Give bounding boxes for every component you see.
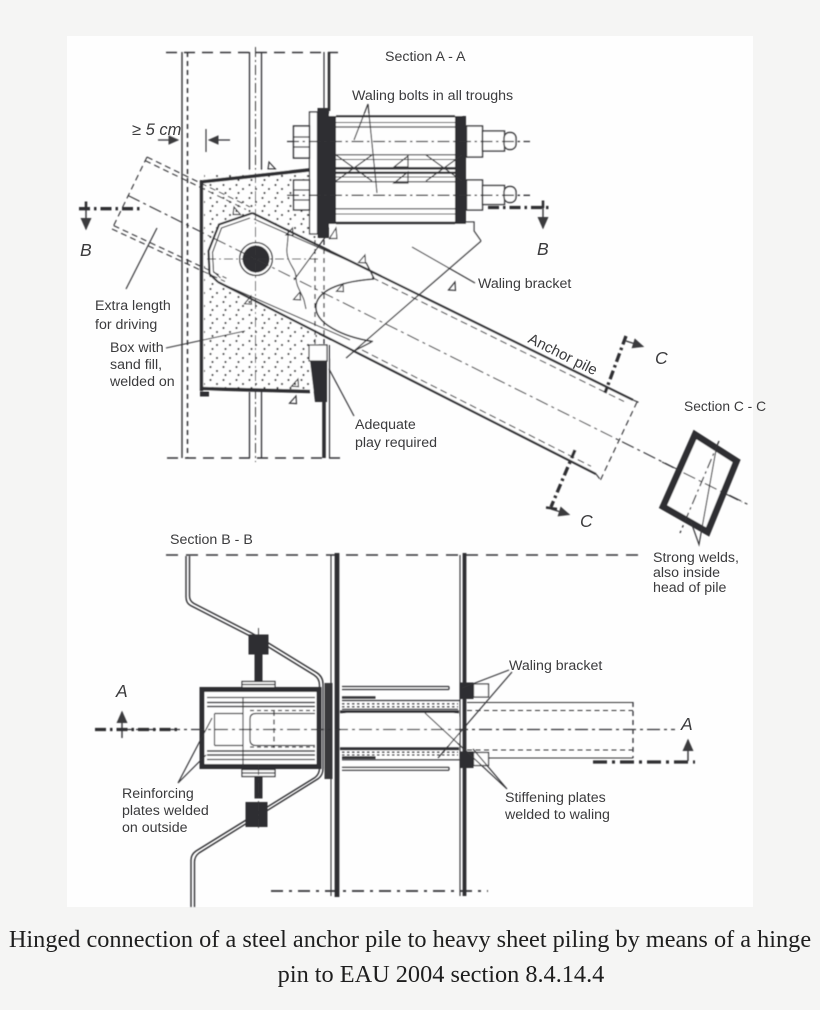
svg-text:plates welded: plates welded [122, 803, 209, 819]
svg-text:Section C - C: Section C - C [684, 399, 766, 414]
svg-text:Section B - B: Section B - B [170, 532, 253, 548]
svg-text:Waling bolts in all troughs: Waling bolts in all troughs [352, 88, 513, 104]
svg-text:Waling bracket: Waling bracket [478, 276, 571, 292]
svg-text:Section A - A: Section A - A [385, 49, 466, 65]
svg-text:B: B [80, 240, 92, 260]
svg-text:C: C [655, 348, 668, 368]
svg-text:A: A [680, 714, 693, 734]
svg-text:welded to waling: welded to waling [504, 807, 610, 823]
svg-text:Extra length: Extra length [95, 298, 171, 314]
svg-text:Adequate: Adequate [355, 417, 416, 433]
svg-text:C: C [580, 511, 593, 531]
svg-text:also inside: also inside [653, 565, 720, 581]
svg-text:pin to EAU 2004 section 8.4.14: pin to EAU 2004 section 8.4.14.4 [278, 961, 605, 988]
svg-text:A: A [115, 681, 128, 701]
svg-text:Box with: Box with [110, 340, 164, 356]
svg-text:Waling bracket: Waling bracket [509, 658, 602, 674]
svg-text:sand fill,: sand fill, [110, 357, 162, 373]
svg-text:for driving: for driving [95, 317, 157, 333]
svg-text:≥ 5 cm: ≥ 5 cm [132, 121, 181, 139]
svg-text:Strong welds,: Strong welds, [653, 550, 739, 566]
svg-text:welded on: welded on [109, 374, 175, 390]
svg-text:on outside: on outside [122, 820, 188, 836]
svg-text:B: B [537, 239, 549, 259]
svg-text:play required: play required [355, 435, 437, 451]
svg-text:Reinforcing: Reinforcing [122, 786, 194, 802]
svg-text:head of pile: head of pile [653, 580, 726, 596]
svg-text:Hinged connection of a steel a: Hinged connection of a steel anchor pile… [9, 926, 811, 953]
svg-text:Stiffening plates: Stiffening plates [505, 790, 606, 806]
